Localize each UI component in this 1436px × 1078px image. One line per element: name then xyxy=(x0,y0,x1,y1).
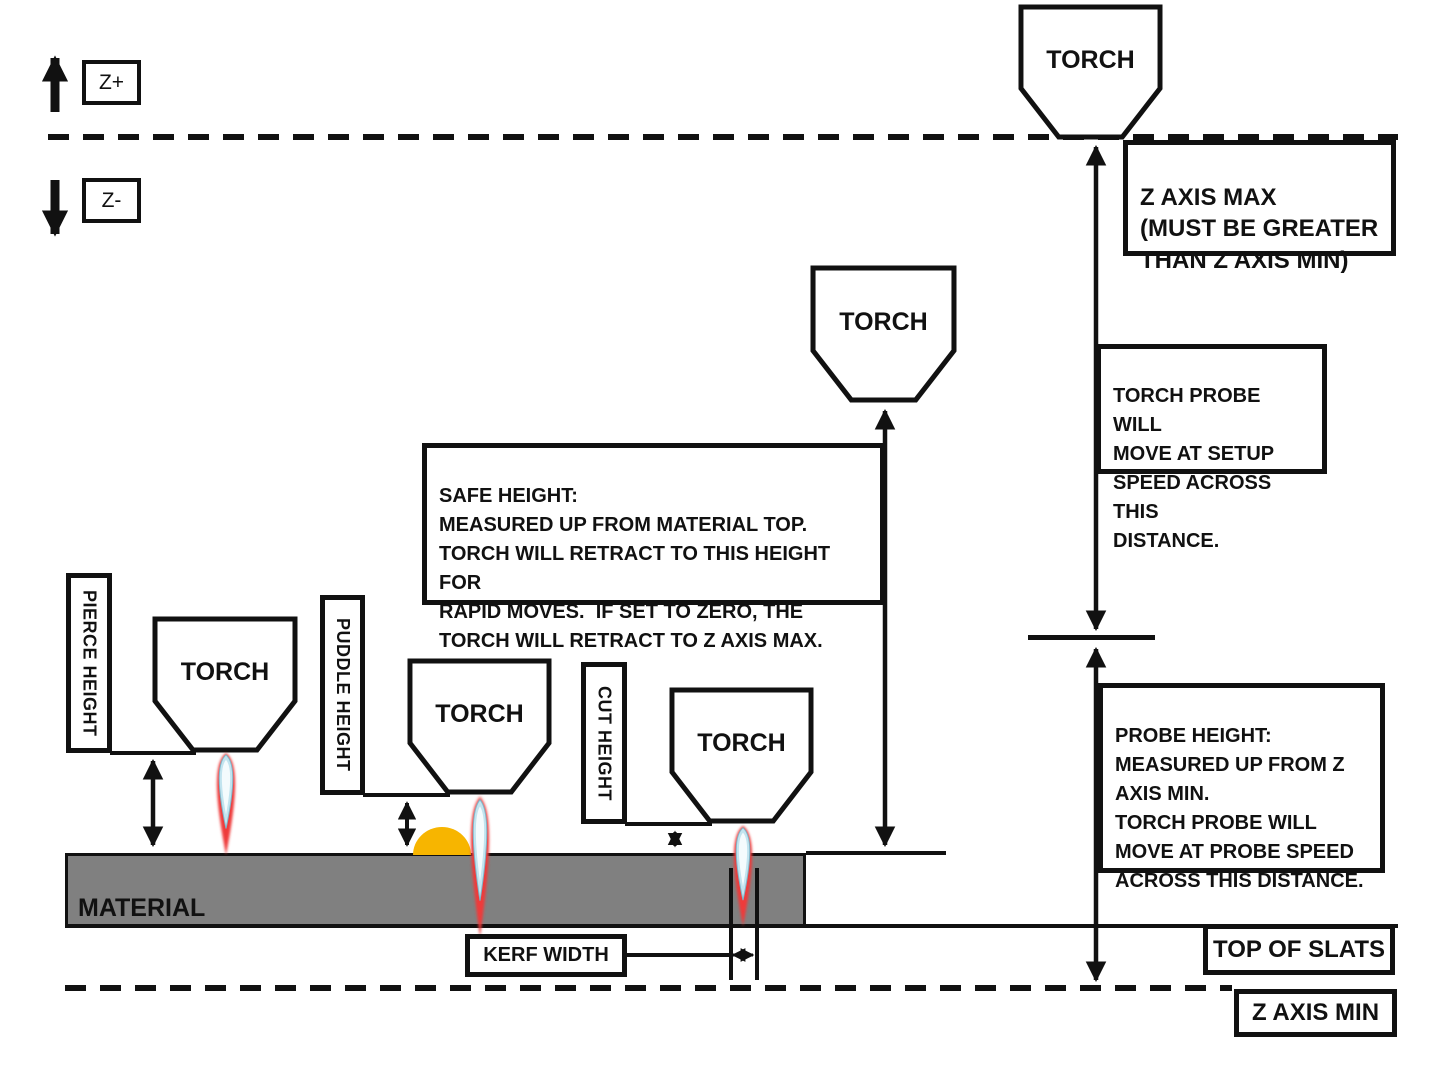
safe-height-callout: SAFE HEIGHT: MEASURED UP FROM MATERIAL T… xyxy=(422,443,885,605)
pierce-height-label: PIERCE HEIGHT xyxy=(66,573,112,753)
torch-label: TORCH xyxy=(810,308,957,337)
top-of-slats-label: TOP OF SLATS xyxy=(1203,924,1395,975)
material-label: MATERIAL xyxy=(78,894,205,923)
probe-height-callout: PROBE HEIGHT: MEASURED UP FROM Z AXIS MI… xyxy=(1098,683,1385,873)
material-slab: MATERIAL xyxy=(65,853,806,928)
z-minus-text: Z- xyxy=(102,189,122,213)
z-minus-label: Z- xyxy=(82,178,141,223)
torch-at-cut-height: TORCH xyxy=(669,687,814,824)
torch-at-pierce-height: TORCH xyxy=(152,616,298,753)
torch-label: TORCH xyxy=(152,658,298,687)
z-axis-min-text: Z AXIS MIN xyxy=(1252,999,1379,1027)
puddle-height-arrow xyxy=(394,796,420,852)
z-plus-label: Z+ xyxy=(82,60,141,105)
z-axis-max-text: Z AXIS MAX (MUST BE GREATER THAN Z AXIS … xyxy=(1140,184,1378,273)
torch-probe-text: TORCH PROBE WILL MOVE AT SETUP SPEED ACR… xyxy=(1113,385,1274,552)
puddle-flame-icon xyxy=(460,793,500,941)
kerf-width-text: KERF WIDTH xyxy=(483,944,609,967)
torch-at-safe-height: TORCH xyxy=(810,265,957,403)
torch-height-diagram: Z+ Z- MATERIAL TORCH TORCH TORCH xyxy=(0,0,1436,1078)
torch-probe-callout: TORCH PROBE WILL MOVE AT SETUP SPEED ACR… xyxy=(1096,344,1327,474)
probe-height-text: PROBE HEIGHT: MEASURED UP FROM Z AXIS MI… xyxy=(1115,725,1364,892)
z-plus-arrow-icon xyxy=(40,42,70,116)
torch-at-z-max: TORCH xyxy=(1018,4,1163,140)
z-axis-max-callout: Z AXIS MAX (MUST BE GREATER THAN Z AXIS … xyxy=(1123,140,1396,256)
cut-height-label: CUT HEIGHT xyxy=(581,662,627,824)
torch-label: TORCH xyxy=(1018,46,1163,75)
z-minus-arrow-icon xyxy=(40,176,70,250)
torch-at-puddle-height: TORCH xyxy=(407,658,552,795)
kerf-connector-line xyxy=(627,953,729,957)
cut-height-arrow xyxy=(662,825,688,853)
kerf-width-label: KERF WIDTH xyxy=(465,934,627,977)
pierce-flame-icon xyxy=(206,750,246,858)
puddle-height-text: PUDDLE HEIGHT xyxy=(332,618,353,772)
cut-height-text: CUT HEIGHT xyxy=(594,686,615,801)
z-axis-min-label: Z AXIS MIN xyxy=(1234,989,1397,1037)
pierce-height-text: PIERCE HEIGHT xyxy=(79,590,100,737)
torch-label: TORCH xyxy=(407,700,552,729)
safe-height-text: SAFE HEIGHT: MEASURED UP FROM MATERIAL T… xyxy=(439,485,830,652)
z-axis-min-line xyxy=(65,985,1232,991)
pierce-height-arrow xyxy=(140,753,166,853)
puddle-height-label: PUDDLE HEIGHT xyxy=(320,595,365,795)
torch-label: TORCH xyxy=(669,729,814,758)
kerf-width-arrow xyxy=(727,944,759,966)
top-of-slats-text: TOP OF SLATS xyxy=(1213,936,1385,964)
z-plus-text: Z+ xyxy=(99,71,124,95)
